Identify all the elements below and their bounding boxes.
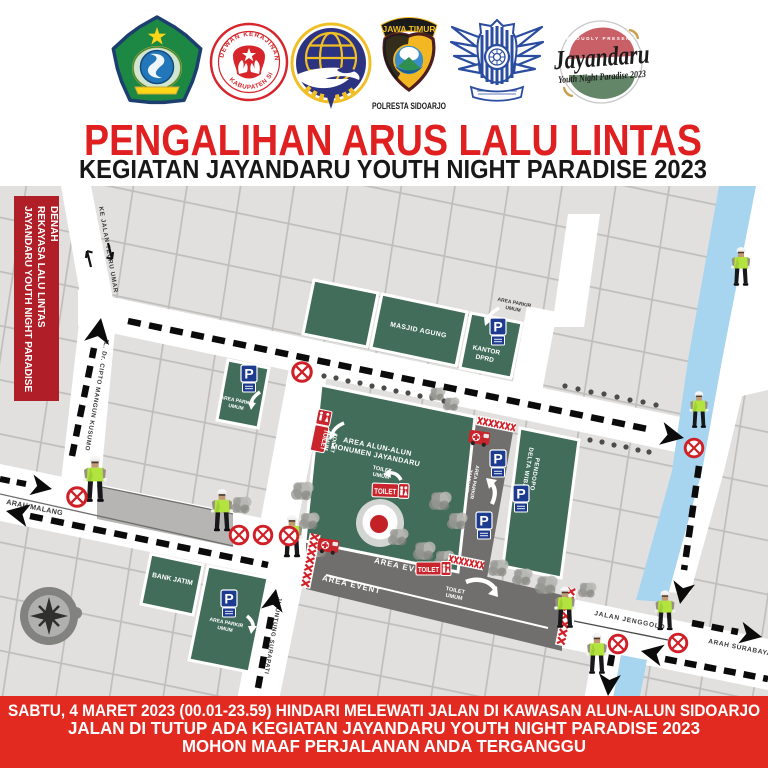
svg-text:DENAH: DENAH <box>48 206 59 242</box>
svg-text:MOHON MAAF PERJALANAN ANDA TER: MOHON MAAF PERJALANAN ANDA TERGANGGU <box>182 736 586 756</box>
svg-text:JALAN DI TUTUP ADA KEGIATAN JA: JALAN DI TUTUP ADA KEGIATAN JAYANDARU YO… <box>68 718 700 738</box>
svg-text:REKAYASA LALU LINTAS: REKAYASA LALU LINTAS <box>35 206 46 328</box>
svg-text:KEGIATAN JAYANDARU YOUTH NIGHT: KEGIATAN JAYANDARU YOUTH NIGHT PARADISE … <box>79 154 707 184</box>
svg-text:POLRESTA SIDOARJO: POLRESTA SIDOARJO <box>372 101 446 111</box>
svg-text:JAWA TIMUR: JAWA TIMUR <box>382 24 435 34</box>
svg-text:JAYANDARU YOUTH NIGHT PARADISE: JAYANDARU YOUTH NIGHT PARADISE <box>22 206 33 392</box>
